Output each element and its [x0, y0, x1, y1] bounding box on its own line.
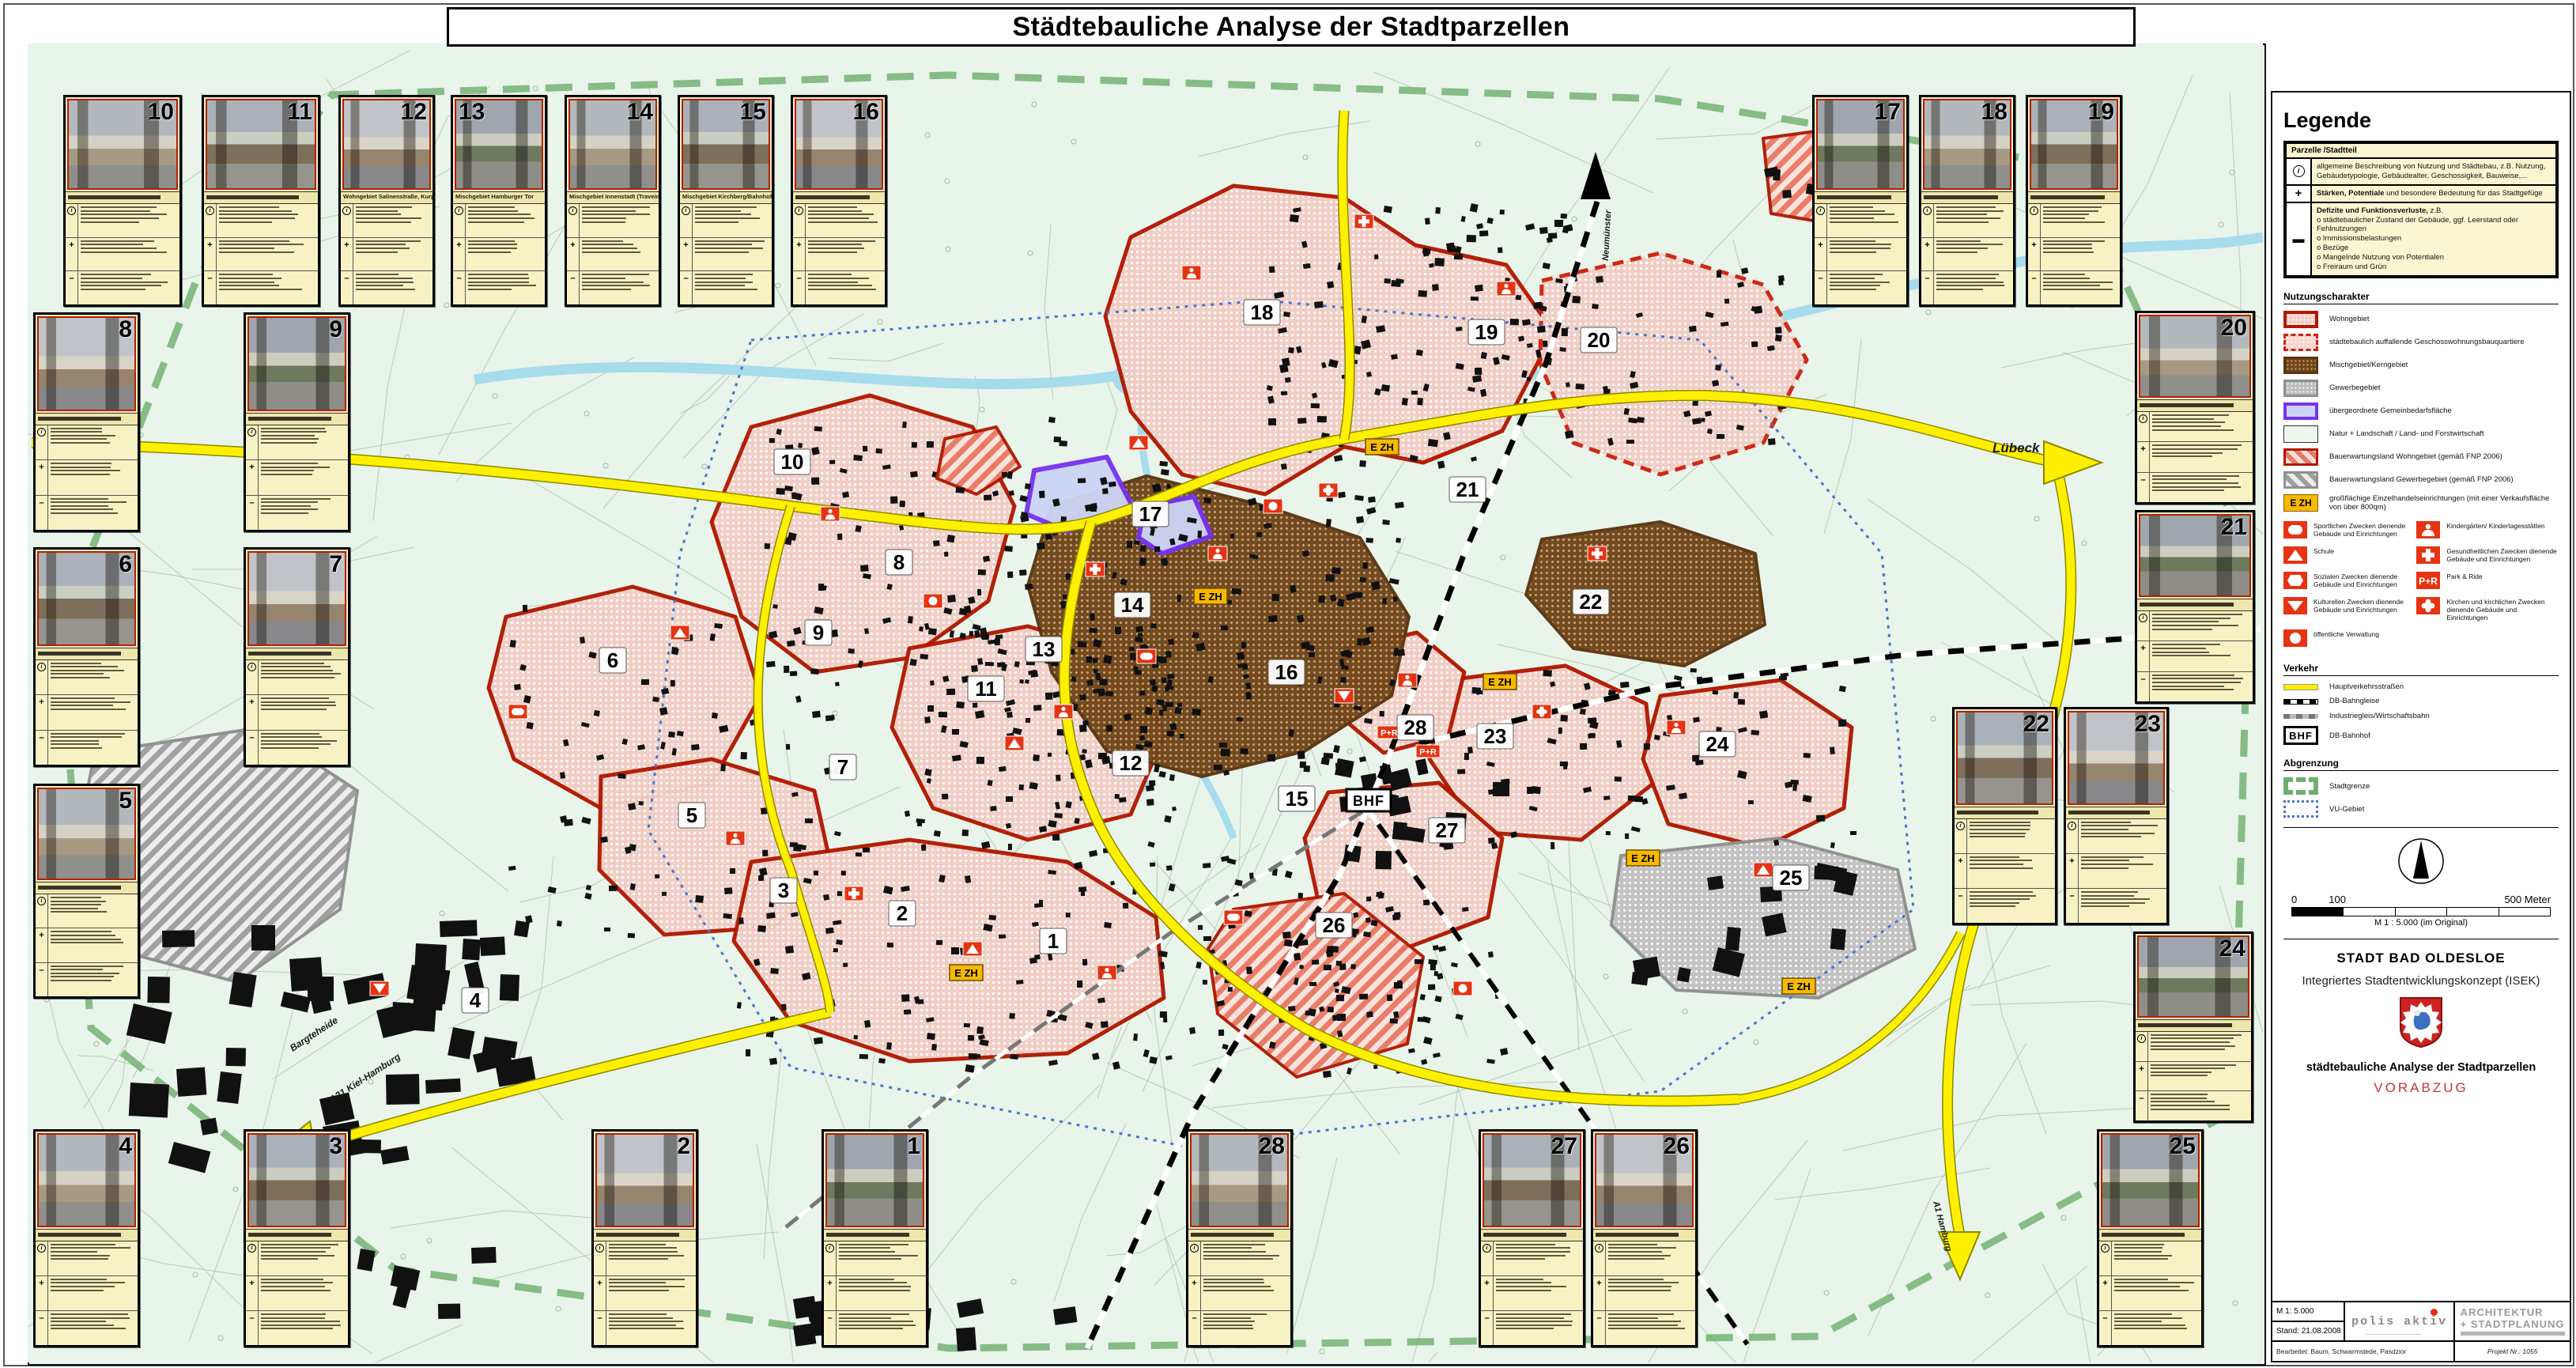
architektur-logo: ARCHITEKTUR+ STADTPLANUNG — [2455, 1302, 2570, 1342]
card-photo: 24 — [2137, 935, 2249, 1018]
card-caption — [2028, 191, 2120, 204]
legend-panel: Legende Parzelle /Stadtteil i allgemeine… — [2271, 91, 2571, 1362]
facility-triangle-icon — [670, 625, 689, 640]
card-caption: Mischgebiet Innenstadt (Traveinsel) — [567, 191, 659, 204]
card-info-row: i — [824, 1241, 926, 1276]
district-marker-14: 14 — [1114, 592, 1150, 618]
card-number: 17 — [1875, 100, 1901, 124]
parcel-card-14: 14Mischgebiet Innenstadt (Traveinsel)i+– — [565, 95, 661, 307]
legend-item-ezh: E ZHgroßflächige Einzelhandelseinrichtun… — [2283, 494, 2559, 512]
card-info-row: i — [36, 425, 138, 460]
card-photo: 26 — [1595, 1133, 1694, 1227]
facility-quatrefoil-icon — [1532, 705, 1551, 719]
ezh-badge: E ZH — [1782, 978, 1815, 994]
card-minus-row: – — [2066, 889, 2166, 923]
card-minus-row: – — [246, 1311, 348, 1345]
minus-bullet: o Immissionsbelastungen — [2317, 234, 2551, 244]
svg-text:P+R: P+R — [1381, 729, 1398, 739]
legend-item-label: großflächige Einzelhandelseinrichtungen … — [2329, 494, 2559, 512]
district-marker-15: 15 — [1279, 786, 1315, 811]
section-verkehr: Verkehr — [2283, 663, 2559, 674]
facility-cross-icon — [1086, 562, 1105, 576]
card-minus-row: – — [2028, 271, 2120, 304]
legend-item-gwq: städtebaulich auffallende Geschosswohnun… — [2283, 334, 2559, 351]
card-plus-row: + — [1921, 238, 2013, 272]
parcel-card-5: 5i+– — [33, 784, 140, 999]
svg-text:BHF: BHF — [1353, 793, 1384, 809]
card-info-row: i — [1593, 1241, 1695, 1276]
card-minus-row: – — [1481, 1311, 1583, 1345]
card-photo: 6 — [37, 551, 136, 646]
parcel-card-9: 9i+– — [244, 312, 350, 532]
card-plus-row: + — [246, 695, 348, 730]
parcel-card-4: 4i+– — [33, 1129, 140, 1347]
card-minus-row: – — [2137, 473, 2253, 502]
card-minus-row: – — [680, 271, 772, 304]
svg-text:16: 16 — [1275, 660, 1298, 684]
minus-bullet: o Bezüge — [2317, 244, 2551, 253]
card-plus-row: + — [1593, 1276, 1695, 1311]
card-plus-row: + — [453, 238, 545, 272]
card-photo: 28 — [1190, 1133, 1289, 1227]
key-info-text: allgemeine Beschreibung von Nutzung und … — [2312, 159, 2555, 184]
parcel-card-25: 25i+– — [2097, 1129, 2204, 1347]
vu-swatch — [2283, 800, 2318, 818]
ezh-badge: E ZH — [1483, 674, 1517, 690]
svg-text:9: 9 — [813, 621, 824, 644]
scale-bar: 0 100 500 Meter M 1 : 5.000 (im Original… — [2291, 894, 2551, 928]
card-info-row: i — [1481, 1241, 1583, 1276]
facility-label: Schule — [2313, 546, 2334, 555]
facility-label: Gesundheitlichen Zwecken dienende Gebäud… — [2446, 546, 2559, 563]
svg-text:2: 2 — [897, 901, 908, 925]
card-minus-row: – — [36, 963, 138, 996]
card-caption: Mischgebiet Kirchberg/Bahnhof — [680, 191, 772, 204]
facility-triangle-icon — [1754, 863, 1773, 877]
svg-text:21: 21 — [1456, 478, 1479, 501]
card-plus-row: + — [2137, 641, 2253, 671]
legend-item-label: DB-Bahnhof — [2329, 731, 2370, 740]
facility-legend-blob: Sozialen Zwecken dienende Gebäude und Ei… — [2283, 572, 2410, 589]
card-minus-row: – — [824, 1311, 926, 1345]
parcel-card-13: 13Mischgebiet Hamburger Tori+– — [451, 95, 547, 307]
card-minus-row: – — [341, 271, 432, 304]
svg-text:E ZH: E ZH — [1631, 852, 1655, 864]
district-marker-11: 11 — [968, 676, 1004, 701]
parcel-card-16: 16i+– — [791, 95, 887, 307]
card-info-row: i — [341, 204, 432, 238]
card-number: 8 — [119, 318, 132, 342]
key-minus-text: Defizite und Funktionsverluste, z.B. o s… — [2312, 203, 2555, 275]
legend-item-label: DB-Bahngleise — [2329, 697, 2379, 705]
card-number: 4 — [119, 1135, 132, 1158]
isek-subtitle: Integriertes Stadtentwicklungskonzept (I… — [2283, 974, 2559, 988]
vorabzug-stamp: VORABZUG — [2283, 1080, 2559, 1096]
card-number: 7 — [329, 553, 342, 576]
minus-bullet: o Freiraum und Grün — [2317, 263, 2551, 272]
card-photo: 19 — [2030, 99, 2118, 190]
stadium-icon — [2283, 521, 2307, 539]
invtriangle-icon — [2283, 597, 2307, 614]
card-caption — [1593, 1229, 1695, 1241]
card-info-row: i — [2028, 204, 2120, 238]
legend-item-bhf: BHFDB-Bahnhof — [2283, 726, 2559, 745]
svg-text:17: 17 — [1139, 502, 1162, 526]
card-info-row: i — [594, 1241, 696, 1276]
facility-person-icon — [1667, 720, 1686, 735]
district-marker-17: 17 — [1132, 501, 1169, 527]
card-minus-row: – — [567, 271, 659, 304]
parcel-card-24: 24i+– — [2133, 932, 2253, 1123]
card-number: 16 — [853, 100, 879, 124]
facility-quatrefoil-icon — [1319, 483, 1338, 497]
district-marker-19: 19 — [1468, 319, 1505, 345]
district-marker-9: 9 — [805, 620, 832, 645]
legend-item-gew: Gewerbegebiet — [2283, 380, 2559, 397]
card-caption — [2136, 1019, 2251, 1032]
facility-person-icon — [726, 831, 745, 845]
scale-500: 500 Meter — [2504, 894, 2551, 905]
legend-item-label: Hauptverkehrsstraßen — [2329, 682, 2404, 691]
scale-caption: M 1 : 5.000 (im Original) — [2291, 918, 2551, 928]
legend-item-label: Bauerwartungsland Gewerbegebiet (gemäß F… — [2329, 475, 2514, 484]
svg-text:11: 11 — [975, 677, 997, 701]
svg-text:7: 7 — [837, 755, 848, 779]
facility-triangle-icon — [1129, 436, 1148, 450]
gmb-swatch — [2283, 402, 2318, 420]
card-photo: 7 — [247, 551, 346, 646]
card-photo: 2 — [595, 1133, 694, 1227]
card-photo: 22 — [1956, 711, 2053, 805]
district-marker-20: 20 — [1581, 327, 1617, 353]
polis-red-dot — [2431, 1309, 2438, 1316]
svg-text:20: 20 — [1588, 328, 1611, 352]
card-caption — [1955, 807, 2055, 819]
card-caption — [246, 648, 348, 660]
card-info-row: i — [246, 1241, 348, 1276]
legend-item-road: Hauptverkehrsstraßen — [2283, 682, 2559, 691]
card-minus-row: – — [36, 1311, 138, 1345]
card-photo: 1 — [825, 1133, 924, 1227]
analysis-poster: LübeckBargteheideA21 Kiel-HamburgA1 Hamb… — [0, 0, 2576, 1368]
svg-text:12: 12 — [1120, 751, 1143, 775]
district-marker-26: 26 — [1316, 913, 1352, 938]
svg-text:27: 27 — [1436, 818, 1459, 842]
card-photo: 8 — [37, 316, 136, 411]
parcel-card-23: 23i+– — [2064, 707, 2169, 925]
svg-text:P+R: P+R — [2419, 576, 2438, 587]
facility-legend-pr: P+RPark & Ride — [2416, 572, 2559, 589]
triangle-icon — [2283, 546, 2307, 564]
card-plus-row: + — [36, 460, 138, 495]
card-caption — [793, 191, 885, 204]
district-marker-10: 10 — [774, 449, 810, 474]
parcel-card-17: 17i+– — [1812, 95, 1909, 307]
ezh-swatch: E ZH — [2283, 494, 2318, 512]
park-ride-badge: P+R — [1416, 745, 1440, 758]
poster-title: Städtebauliche Analyse der Stadtparzelle… — [1012, 12, 1569, 43]
card-plus-row: + — [246, 460, 348, 495]
plus-icon: + — [2287, 186, 2312, 202]
person-icon — [2416, 521, 2440, 539]
abgrenzung-legend-list: StadtgrenzeVU-Gebiet — [2283, 777, 2559, 818]
card-photo: 13 — [455, 99, 543, 190]
card-info-row: i — [246, 425, 348, 460]
card-info-row: i — [2137, 611, 2253, 641]
card-number: 5 — [119, 789, 132, 813]
card-caption — [36, 1229, 138, 1241]
minus-bullet: o städtebaulicher Zustand der Gebäude, g… — [2317, 216, 2551, 235]
natur-swatch — [2283, 425, 2318, 443]
card-minus-row: – — [2099, 1311, 2201, 1345]
card-number: 24 — [2219, 937, 2246, 961]
legend-item-natur: Natur + Landschaft / Land- und Forstwirt… — [2283, 425, 2559, 443]
facility-label: Sportlichen Zwecken dienende Gebäude und… — [2313, 521, 2410, 538]
card-caption — [204, 191, 318, 204]
facility-cross-icon — [844, 886, 863, 901]
card-info-row: i — [204, 204, 318, 238]
district-marker-6: 6 — [599, 648, 626, 673]
facility-legend-cross: Gesundheitlichen Zwecken dienende Gebäud… — [2416, 546, 2559, 564]
scale-0: 0 — [2291, 894, 2297, 905]
parcel-card-8: 8i+– — [33, 312, 140, 532]
card-caption — [2137, 399, 2253, 412]
city-crest — [2283, 996, 2559, 1053]
svg-text:18: 18 — [1251, 300, 1274, 324]
district-marker-25: 25 — [1773, 865, 1809, 890]
card-info-row: i — [2066, 819, 2166, 854]
legend-item-wohn: Wohngebiet — [2283, 311, 2559, 328]
parcel-card-22: 22i+– — [1952, 707, 2057, 925]
card-plus-row: + — [793, 238, 885, 272]
legend-item-label: Stadtgrenze — [2329, 782, 2370, 791]
road-label: Lübeck — [1992, 440, 2041, 455]
card-minus-row: – — [204, 271, 318, 304]
city-name: STADT BAD OLDESLOE — [2283, 950, 2559, 966]
card-number: 20 — [2221, 316, 2247, 340]
ezh-badge: E ZH — [950, 965, 983, 981]
svg-text:19: 19 — [1475, 320, 1498, 344]
card-minus-row: – — [36, 731, 138, 765]
north-arrow — [2283, 836, 2559, 890]
card-photo: 15 — [682, 99, 770, 190]
facility-legend-triangle: Schule — [2283, 546, 2410, 564]
card-plus-row: + — [246, 1276, 348, 1311]
card-photo: 5 — [37, 788, 136, 880]
card-minus-row: – — [36, 496, 138, 530]
card-photo: 10 — [67, 99, 178, 190]
facility-legend-circle: öffentliche Verwaltung — [2283, 629, 2410, 647]
card-plus-row: + — [1481, 1276, 1583, 1311]
card-minus-row: – — [246, 731, 348, 765]
card-plus-row: + — [824, 1276, 926, 1311]
ezh-badge: E ZH — [1365, 439, 1399, 455]
facility-cross-icon — [1354, 214, 1373, 229]
svg-text:E ZH: E ZH — [1787, 981, 1811, 992]
cross-icon — [2416, 546, 2440, 564]
legend-item-bwg: Bauerwartungsland Gewerbegebiet (gemäß F… — [2283, 471, 2559, 489]
card-plus-row: + — [36, 695, 138, 730]
facility-label: Sozialen Zwecken dienende Gebäude und Ei… — [2313, 572, 2410, 588]
svg-text:10: 10 — [781, 450, 804, 474]
card-minus-row: – — [246, 496, 348, 530]
bhf-swatch: BHF — [2283, 726, 2318, 745]
parcel-card-28: 28i+– — [1186, 1129, 1293, 1347]
legend-item-label: Natur + Landschaft / Land- und Forstwirt… — [2329, 429, 2484, 438]
card-minus-row: – — [2137, 672, 2253, 701]
card-number: 2 — [677, 1135, 690, 1158]
card-photo: 27 — [1483, 1133, 1581, 1227]
card-minus-row: – — [453, 271, 545, 304]
facility-person-icon — [1497, 282, 1516, 296]
card-plus-row: + — [1955, 854, 2055, 889]
section-abgrenzung: Abgrenzung — [2283, 758, 2559, 769]
district-marker-27: 27 — [1429, 818, 1465, 843]
key-plus-text: Stärken, Potentiale und besondere Bedeut… — [2312, 186, 2555, 202]
card-minus-row: – — [1955, 889, 2055, 923]
card-plus-row: + — [204, 238, 318, 272]
facility-invtriangle-icon — [370, 981, 389, 996]
svg-text:E ZH: E ZH — [1199, 591, 1222, 603]
facility-person-icon — [1398, 673, 1417, 687]
card-photo: 12 — [342, 99, 431, 190]
footer-project: Projekt Nr.: 1055 — [2455, 1342, 2570, 1361]
facility-person-icon — [1208, 546, 1227, 561]
card-info-row: i — [36, 660, 138, 695]
legend-item-label: Mischgebiet/Kerngebiet — [2329, 361, 2408, 369]
card-plus-row: + — [66, 238, 179, 272]
facility-circle-icon — [1263, 499, 1282, 513]
misch-swatch — [2283, 357, 2318, 374]
facility-icon-legend: Sportlichen Zwecken dienende Gebäude und… — [2283, 518, 2559, 651]
legend-item-label: übergeordnete Gemeinbedarfsfläche — [2329, 406, 2452, 415]
card-info-row: i — [36, 894, 138, 928]
district-marker-23: 23 — [1477, 724, 1513, 749]
legend-item-label: Bauerwartungsland Wohngebiet (gemäß FNP … — [2329, 452, 2502, 461]
card-caption — [246, 1229, 348, 1241]
card-info-row: i — [2099, 1241, 2201, 1276]
svg-text:23: 23 — [1484, 724, 1507, 748]
card-number: 9 — [329, 318, 342, 342]
facility-label: Kirchen und kirchlichen Zwecken dienende… — [2446, 597, 2559, 622]
card-info-row: i — [1921, 204, 2013, 238]
card-number: 3 — [329, 1135, 342, 1158]
card-caption — [824, 1229, 926, 1241]
card-info-row: i — [1188, 1241, 1290, 1276]
parcel-card-10: 10i+– — [63, 95, 182, 307]
card-photo: 14 — [568, 99, 657, 190]
parcel-card-20: 20i+– — [2135, 311, 2255, 504]
card-caption — [2099, 1229, 2201, 1241]
svg-text:E ZH: E ZH — [1370, 441, 1394, 453]
facility-legend-stadium: Sportlichen Zwecken dienende Gebäude und… — [2283, 521, 2410, 539]
card-plus-row: + — [2136, 1062, 2251, 1092]
legend-item-label: städtebaulich auffallende Geschosswohnun… — [2329, 338, 2524, 346]
facility-label: Kulturellen Zwecken dienende Gebäude und… — [2313, 597, 2410, 614]
district-marker-18: 18 — [1244, 300, 1280, 325]
card-caption — [36, 882, 138, 894]
card-photo: 11 — [206, 99, 316, 190]
card-plus-row: + — [2137, 442, 2253, 472]
card-number: 22 — [2023, 712, 2049, 736]
legend-item-label: Wohngebiet — [2329, 315, 2370, 323]
card-minus-row: – — [1921, 271, 2013, 304]
district-marker-28: 28 — [1397, 715, 1433, 740]
facility-label: öffentliche Verwaltung — [2313, 629, 2379, 638]
card-caption — [36, 648, 138, 660]
parcel-card-6: 6i+– — [33, 547, 140, 767]
card-plus-row: + — [36, 928, 138, 962]
road-swatch — [2283, 684, 2318, 690]
facility-circle-icon — [1453, 981, 1472, 996]
card-caption — [246, 413, 348, 425]
svg-text:E ZH: E ZH — [1488, 676, 1512, 688]
district-marker-3: 3 — [770, 878, 797, 903]
db-swatch — [2283, 699, 2318, 705]
district-marker-24: 24 — [1699, 731, 1736, 757]
verkehr-legend-list: HauptverkehrsstraßenDB-BahngleiseIndustr… — [2283, 682, 2559, 745]
card-minus-row: – — [793, 271, 885, 304]
svg-text:5: 5 — [686, 803, 697, 827]
parcel-card-3: 3i+– — [244, 1129, 350, 1347]
district-marker-1: 1 — [1040, 928, 1067, 954]
card-caption: Wohngebiet Salinenstraße, Kurparkallee — [341, 191, 432, 204]
card-plus-row: + — [680, 238, 772, 272]
card-info-row: i — [2137, 412, 2253, 442]
svg-text:28: 28 — [1404, 716, 1427, 739]
facility-triangle-icon — [963, 942, 982, 956]
card-caption — [1481, 1229, 1583, 1241]
card-number: 10 — [148, 100, 174, 124]
district-marker-12: 12 — [1112, 750, 1149, 776]
key-header: Parzelle /Stadtteil — [2287, 144, 2555, 157]
district-marker-21: 21 — [1449, 477, 1486, 502]
card-info-row: i — [66, 204, 179, 238]
card-caption — [2137, 599, 2253, 611]
card-plus-row: + — [567, 238, 659, 272]
legend-item-misch: Mischgebiet/Kerngebiet — [2283, 357, 2559, 374]
card-info-row: i — [1815, 204, 1906, 238]
title-block: STADT BAD OLDESLOE Integriertes Stadtent… — [2283, 950, 2559, 1096]
card-info-row: i — [36, 1241, 138, 1276]
legend-key-table: Parzelle /Stadtteil i allgemeine Beschre… — [2283, 141, 2559, 278]
card-minus-row: – — [66, 271, 179, 304]
card-number: 28 — [1259, 1135, 1285, 1158]
card-photo: 20 — [2139, 315, 2251, 398]
card-caption — [36, 413, 138, 425]
card-number: 18 — [1981, 100, 2008, 124]
card-plus-row: + — [2099, 1276, 2201, 1311]
minus-bullet: o Mangelnde Nutzung von Potentialen — [2317, 253, 2551, 263]
facility-stadium-icon — [1137, 649, 1156, 663]
district-marker-2: 2 — [889, 901, 916, 926]
card-info-row: i — [246, 660, 348, 695]
card-number: 21 — [2221, 516, 2247, 539]
card-number: 14 — [627, 100, 653, 124]
parcel-card-7: 7i+– — [244, 547, 350, 767]
facility-invtriangle-icon — [1335, 689, 1354, 703]
parcel-card-1: 1i+– — [822, 1129, 928, 1347]
svg-text:22: 22 — [1580, 590, 1603, 614]
legend-item-label: Industriegleis/Wirtschaftsbahn — [2329, 712, 2430, 720]
facility-cross-icon — [1588, 546, 1607, 561]
card-caption — [1921, 191, 2013, 204]
card-plus-row: + — [2028, 238, 2120, 272]
gwq-swatch — [2283, 334, 2318, 351]
card-plus-row: + — [1188, 1276, 1290, 1311]
card-minus-row: – — [1815, 271, 1906, 304]
parcel-card-12: 12Wohngebiet Salinenstraße, Kurparkallee… — [338, 95, 435, 307]
